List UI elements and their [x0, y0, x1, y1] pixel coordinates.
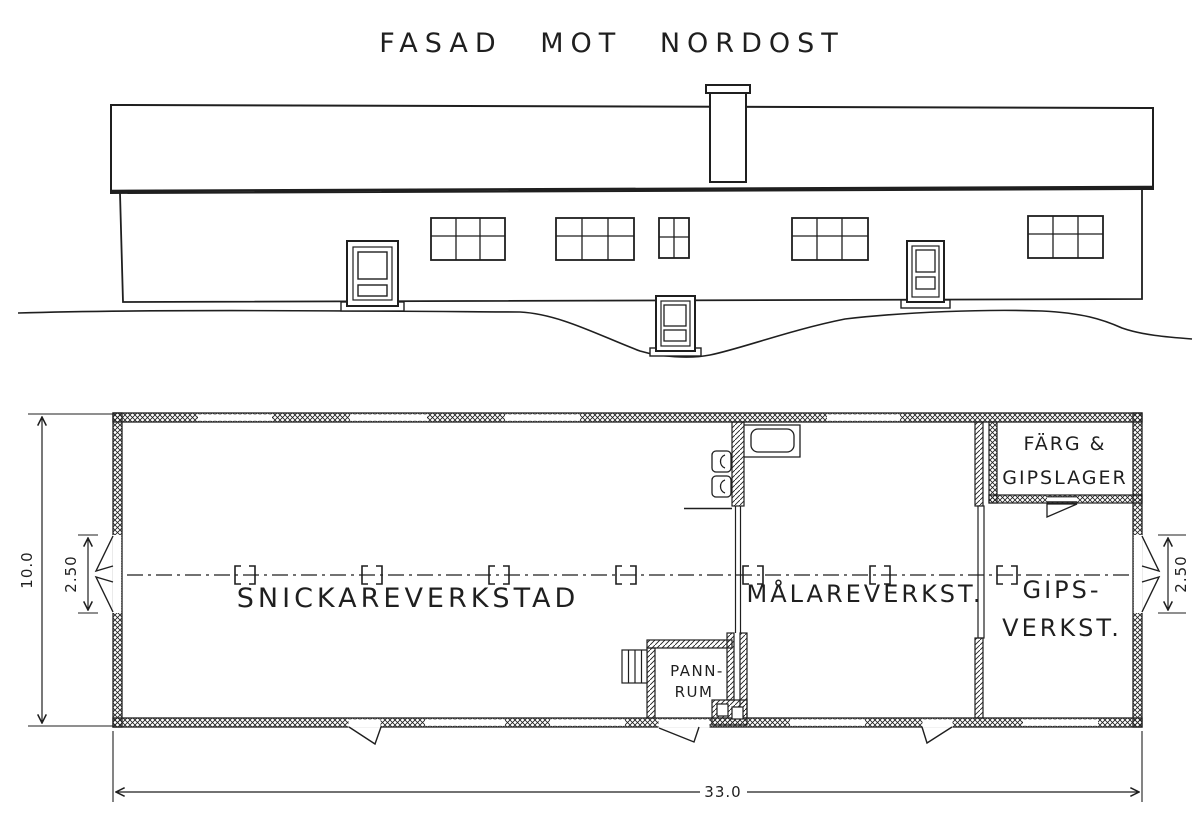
drawing-sheet: FASAD MOT NORDOST [0, 0, 1200, 835]
facade-door-basement [650, 296, 701, 356]
room-label-farg-gipslager-line2: GIPSLAGER [1002, 467, 1127, 489]
facade-door-right [901, 241, 950, 308]
boiler-chimney-block [712, 700, 747, 725]
ground-line [18, 310, 1192, 357]
end-opening-symbol-left [96, 536, 113, 612]
facade-window-3 [792, 218, 868, 260]
room-label-gipsverkstad-line1: GIPS- [1022, 576, 1101, 604]
facade-wall [120, 190, 1142, 302]
fuel-chute [622, 650, 647, 683]
facade-window-small [659, 218, 689, 258]
facade-window-4 [1028, 216, 1103, 258]
sink-tub [744, 425, 800, 457]
dimension-total-length: 33.0 [113, 731, 1142, 802]
chimney [706, 85, 750, 182]
dimension-label-33-0: 33.0 [704, 783, 741, 801]
wash-basin-1 [712, 451, 731, 472]
plumbing-fixtures [712, 425, 800, 497]
drawing-title: FASAD MOT NORDOST [379, 28, 845, 59]
room-label-snickareverkstad: SNICKAREVERKSTAD [237, 583, 579, 614]
architectural-drawing: FASAD MOT NORDOST [0, 0, 1200, 835]
facade-elevation [18, 85, 1192, 357]
facade-door-left [341, 241, 404, 311]
dimension-label-10-0: 10.0 [18, 551, 36, 588]
room-label-pannrum-line1: PANN- [670, 662, 724, 680]
facade-window-2 [556, 218, 634, 260]
dimension-left-opening: 2.50 [62, 535, 98, 613]
dimension-right-opening: 2.50 [1158, 535, 1190, 613]
facade-roof [111, 105, 1153, 193]
room-label-farg-gipslager-line1: FÄRG & [1024, 432, 1107, 455]
dimension-label-left-2-50: 2.50 [62, 555, 80, 592]
room-label-pannrum-line2: RUM [675, 683, 714, 701]
wash-basin-2 [712, 476, 731, 497]
wall-door-openings [112, 535, 1142, 728]
door-swings [349, 727, 952, 744]
facade-window-1 [431, 218, 505, 260]
floor-plan: SNICKAREVERKSTAD MÅLAREVERKST. GIPS- VER… [18, 413, 1190, 802]
room-label-gipsverkstad-line2: VERKST. [1002, 614, 1122, 642]
dimension-label-right-2-50: 2.50 [1172, 555, 1190, 592]
end-opening-symbol-right [1142, 536, 1159, 612]
room-label-malareverkstad: MÅLAREVERKST. [747, 579, 984, 608]
